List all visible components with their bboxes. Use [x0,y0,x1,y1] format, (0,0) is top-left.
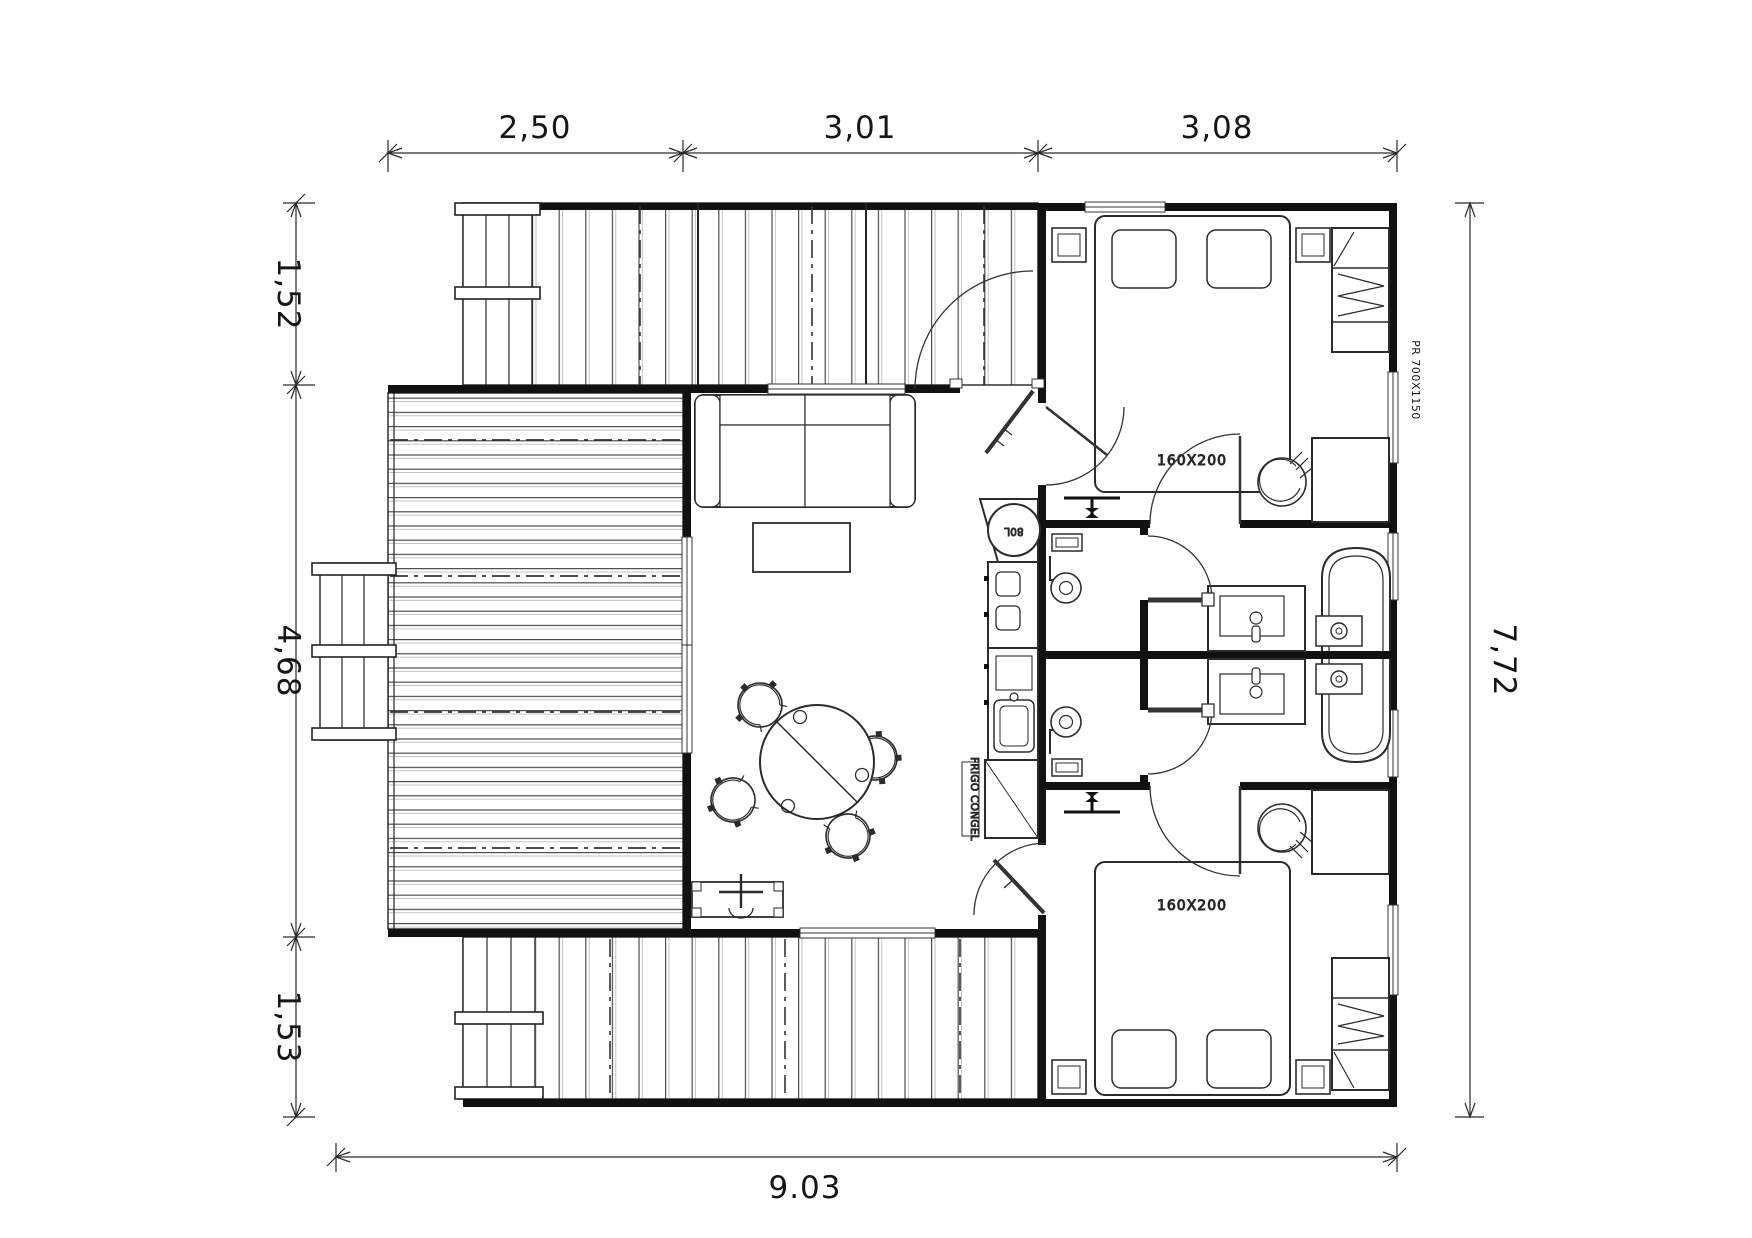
bedroom-2-door [974,843,1046,915]
water-valve-top [1064,498,1120,518]
nightstand [1296,228,1330,262]
dim-top-2: 3,01 [823,110,896,146]
wardrobe-2 [1332,958,1389,1090]
kitchen: 80L FRIGO CONGEL [962,499,1040,841]
entry-steps [312,563,396,740]
water-valve-bottom [1064,792,1120,812]
desk-chair-2 [1258,804,1312,858]
wc-1 [1050,534,1082,603]
vanity-1 [1208,586,1305,651]
bath-mixer-2 [1316,664,1362,694]
living-west-window [682,537,692,753]
sofa [695,395,915,507]
desk-2 [1312,790,1389,874]
bedroom1-north-window [1085,202,1165,212]
pillow [1112,1030,1176,1088]
pillow [1207,1030,1271,1088]
bedroom-1: 160X200 [1052,216,1389,522]
dim-bottom: 9.03 [768,1170,841,1206]
dim-left-3: 1,53 [270,990,306,1063]
fridge-label: FRIGO CONGEL [968,757,980,841]
bathroom-1 [1208,548,1390,651]
bed-1-label: 160X200 [1157,453,1227,469]
desk-1 [1312,438,1389,522]
top-walkway [455,203,540,385]
cooktop [984,562,1038,648]
dim-right: 7,72 [1486,623,1522,696]
bottom-deck [455,937,1038,1099]
pillow [1207,230,1271,288]
dining-set [699,668,903,870]
dim-top-1: 2,50 [498,110,571,146]
nightstand [1052,228,1086,262]
bedroom-2: 160X200 [1052,790,1389,1095]
wc-2-door [1148,704,1214,774]
dim-left-2: 4,68 [270,624,306,697]
fridge-freezer: FRIGO CONGEL [962,757,1038,841]
left-deck [388,393,683,929]
pillow [1112,230,1176,288]
wc-1-door [1148,536,1214,606]
vanity-2 [1208,659,1305,724]
wardrobe-1 [1332,228,1389,352]
kitchen-sink-unit [984,648,1038,760]
dim-left-1: 1,52 [270,257,306,330]
bathroom-2 [1208,659,1390,762]
top-deck [455,203,1038,385]
entry-sink-console [692,874,783,918]
living-north-window [768,384,905,394]
living-south-window [800,928,935,938]
wc-2 [1050,707,1082,776]
coffee-table [753,523,850,572]
living-room [692,395,915,918]
nightstand [1052,1060,1086,1094]
nightstand [1296,1060,1330,1094]
floor-plan-drawing: 80L FRIGO CONGEL 160X200 [0,0,1752,1238]
bed-2-label: 160X200 [1157,898,1227,914]
water-heater-label: 80L [1004,525,1023,537]
bottom-walkway [455,937,543,1099]
floor-plan-sheet: 80L FRIGO CONGEL 160X200 [0,0,1752,1238]
bath-mixer-1 [1316,616,1362,646]
dim-top-3: 3,08 [1180,110,1253,146]
window-size-label: PR 700X1150 [1409,340,1422,420]
